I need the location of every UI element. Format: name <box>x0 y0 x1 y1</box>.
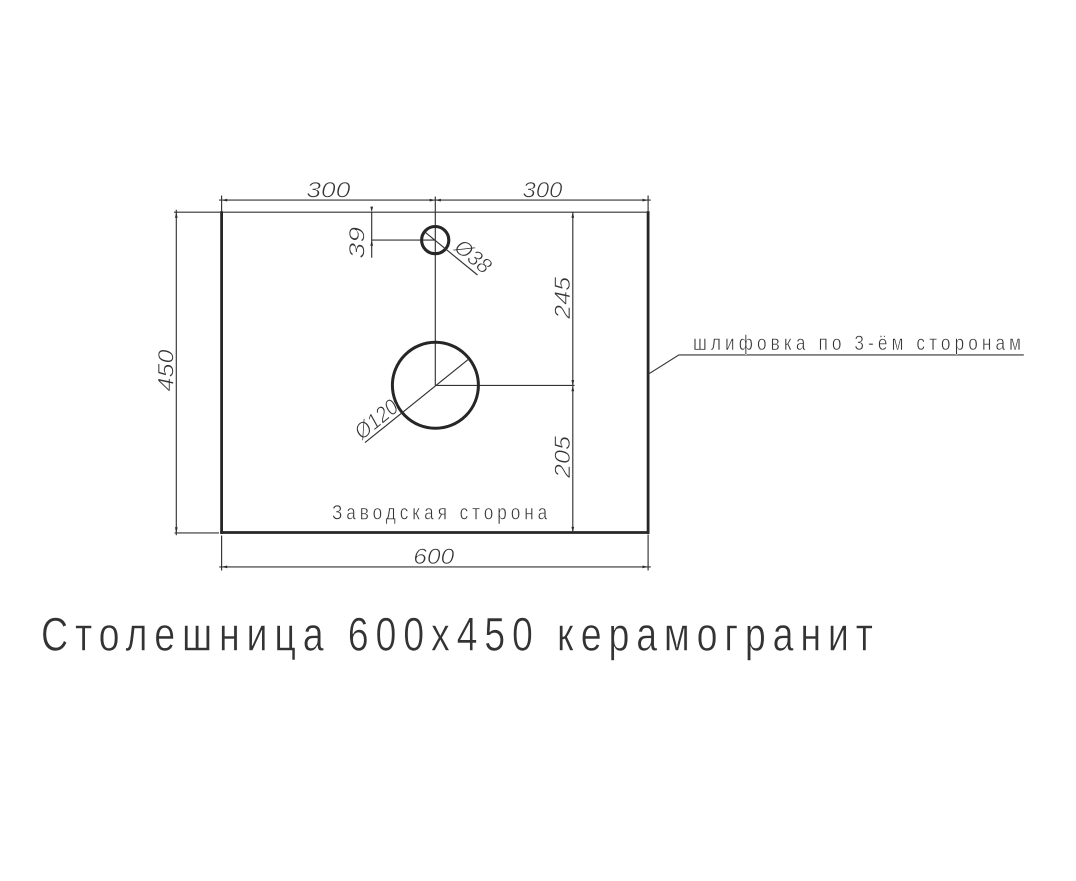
svg-text:600: 600 <box>413 544 455 569</box>
svg-text:245: 245 <box>550 276 575 320</box>
svg-text:300: 300 <box>306 177 351 202</box>
svg-text:шлифовка по 3-ём сторонам: шлифовка по 3-ём сторонам <box>693 331 1021 355</box>
svg-text:39: 39 <box>345 227 370 259</box>
svg-text:205: 205 <box>550 435 575 479</box>
svg-text:Столешница 600х450 керамограни: Столешница 600х450 керамогранит <box>41 608 873 661</box>
svg-text:Заводская сторона: Заводская сторона <box>332 501 547 525</box>
svg-text:300: 300 <box>523 177 564 202</box>
svg-text:450: 450 <box>154 349 179 392</box>
